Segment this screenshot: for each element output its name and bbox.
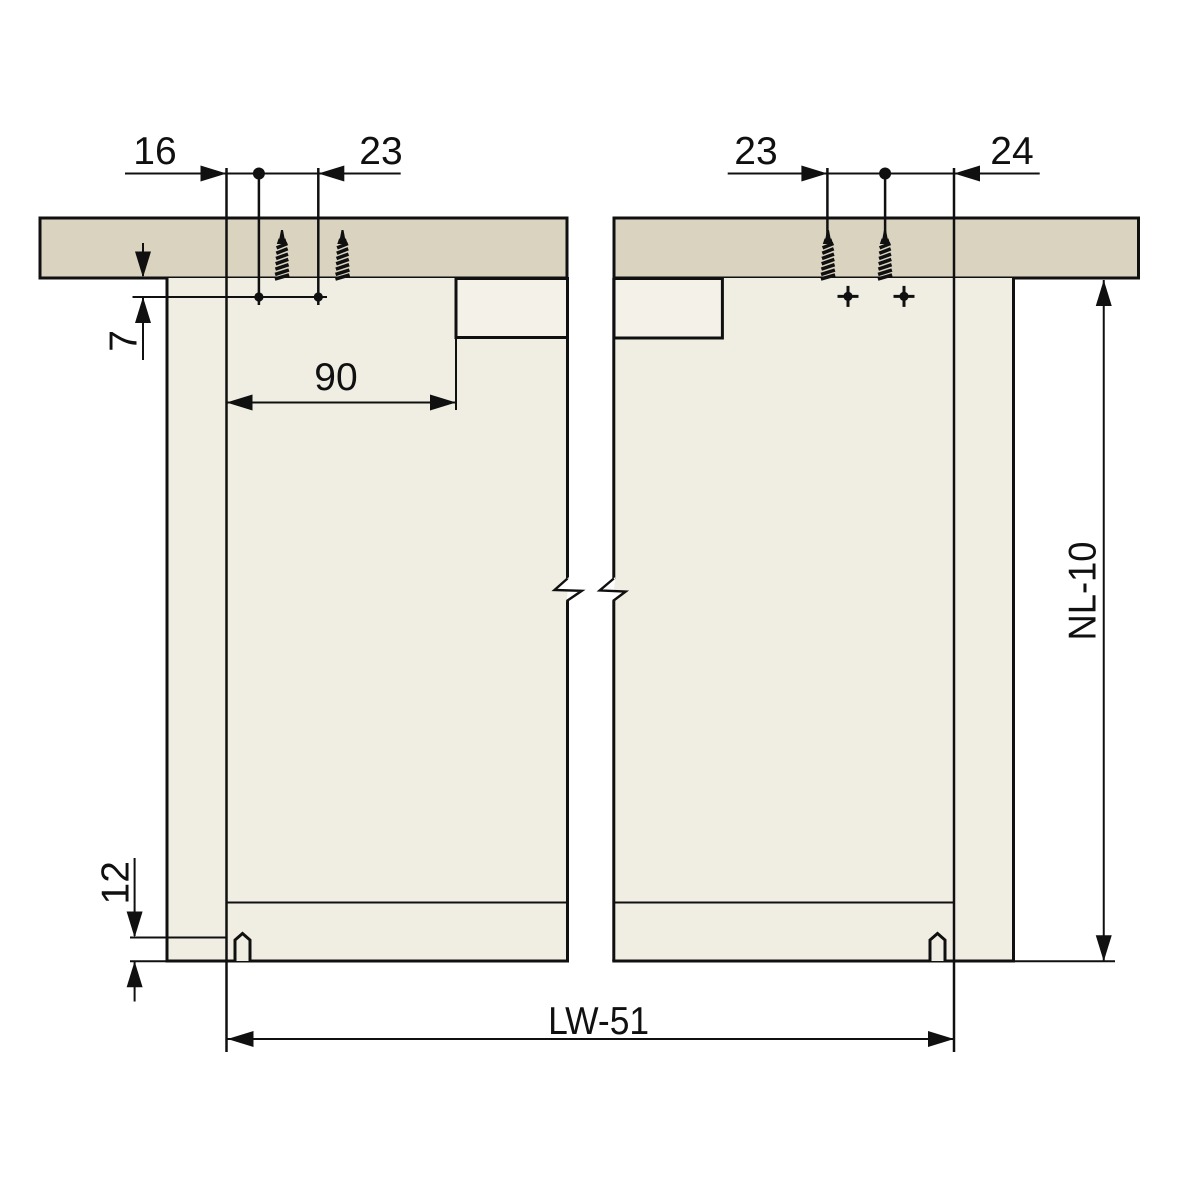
svg-text:NL-10: NL-10 bbox=[1062, 542, 1105, 641]
svg-text:90: 90 bbox=[314, 356, 357, 399]
svg-text:23: 23 bbox=[359, 130, 402, 173]
svg-text:24: 24 bbox=[990, 130, 1033, 173]
svg-text:7: 7 bbox=[103, 330, 146, 352]
svg-text:23: 23 bbox=[734, 130, 777, 173]
svg-text:16: 16 bbox=[133, 130, 176, 173]
svg-text:LW-51: LW-51 bbox=[548, 1000, 649, 1043]
svg-text:12: 12 bbox=[95, 861, 138, 904]
